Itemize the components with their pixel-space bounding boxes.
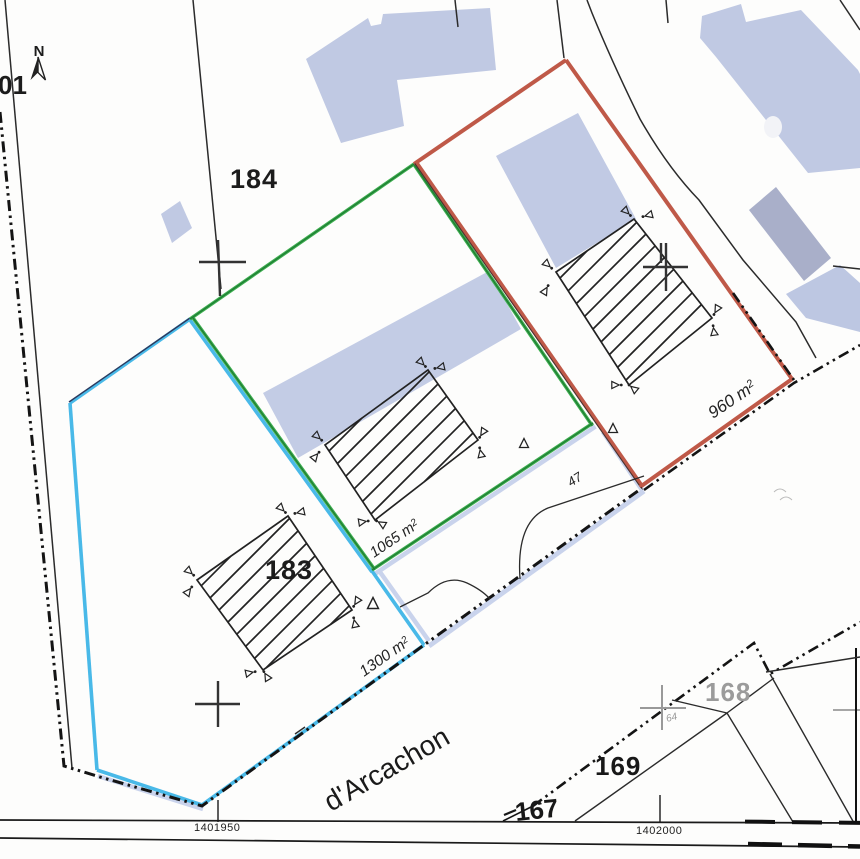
svg-text:01: 01: [0, 70, 27, 100]
svg-text:183: 183: [265, 555, 313, 585]
svg-text:N: N: [34, 43, 45, 60]
svg-text:167: 167: [513, 793, 559, 827]
svg-text:184: 184: [230, 164, 278, 194]
svg-text:168: 168: [705, 677, 751, 707]
svg-text:169: 169: [595, 751, 641, 781]
svg-text:1402000: 1402000: [636, 825, 682, 837]
svg-text:1401950: 1401950: [194, 822, 240, 834]
